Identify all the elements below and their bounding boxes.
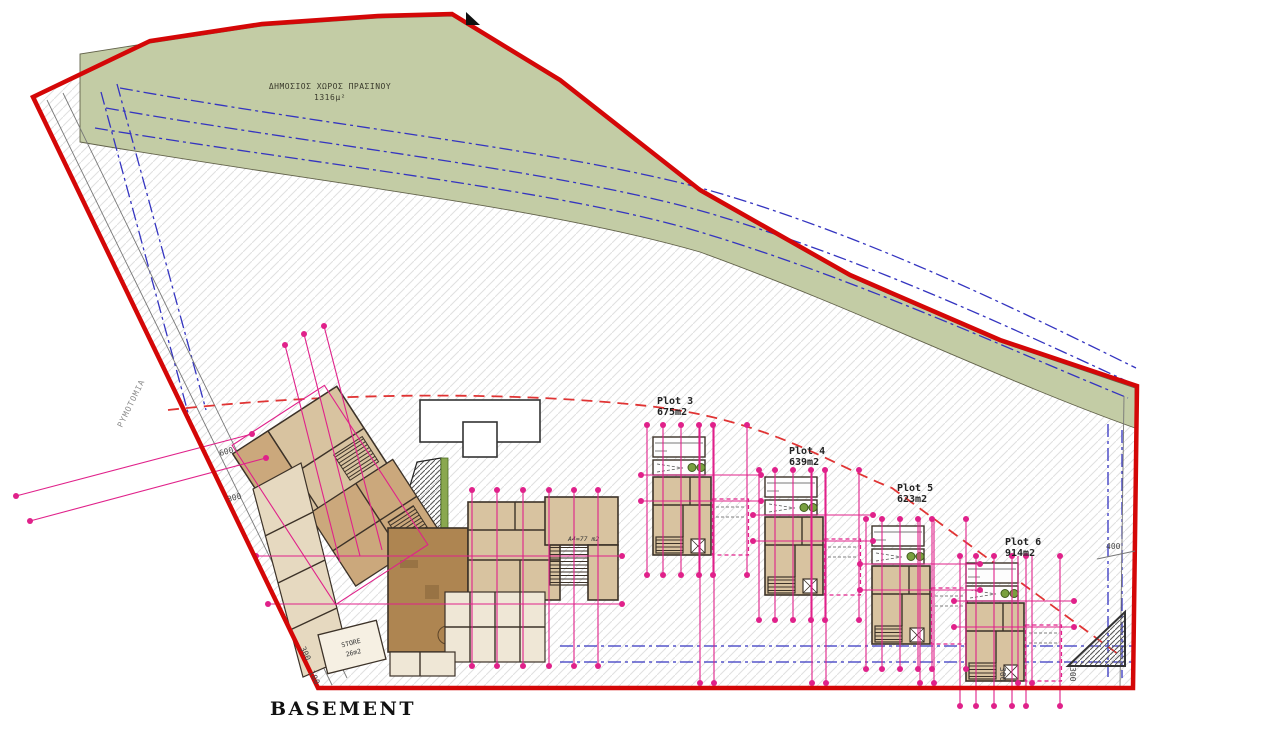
plot4-area: 639m2 [789, 457, 819, 468]
plot3-name: Plot 3 [657, 396, 693, 407]
green-space-area: 1316μ² [314, 93, 346, 102]
drawing-title: BASEMENT [270, 698, 416, 720]
plot6-name: Plot 6 [1005, 537, 1041, 548]
apartment-a4-label: A4=77 m2 [567, 535, 599, 543]
plot3-area: 675m2 [657, 407, 687, 418]
plot4-name: Plot 4 [789, 446, 825, 457]
north-arrow-icon [466, 12, 480, 25]
dim-right-400: 400 [1106, 542, 1121, 551]
site-plan-canvas: STORE 26m2 A4=77 m2 [0, 0, 1280, 735]
plot6-area: 914m2 [1005, 548, 1035, 559]
plot5-name: Plot 5 [897, 483, 933, 494]
plot5-area: 623m2 [897, 494, 927, 505]
site-plan-drawing: STORE 26m2 A4=77 m2 [0, 0, 1280, 735]
right-room-block [468, 497, 618, 600]
dim-plot6-b: 300 [1068, 667, 1077, 682]
boundary-street-label: ΡΥΜΟΤΟΜΙΑ [116, 378, 147, 429]
green-space-label: ΔΗΜΟΣΙΟΣ ΧΩΡΟΣ ΠΡΑΣΙΝΟΥ [269, 82, 391, 91]
dim-plot6-a: 300 [998, 667, 1007, 682]
